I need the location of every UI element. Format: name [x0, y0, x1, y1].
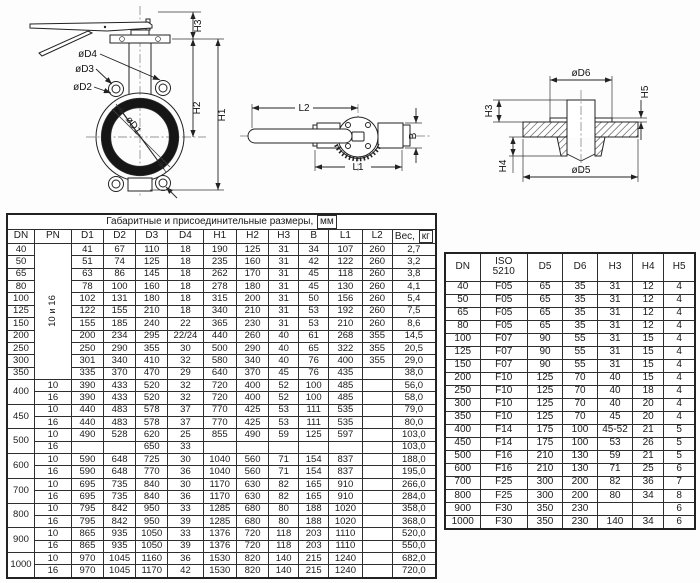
table-cell: 12	[633, 307, 664, 320]
table-cell: 70	[563, 372, 598, 385]
table-cell: 31	[598, 294, 633, 307]
table-cell: 100	[104, 281, 136, 293]
table-cell: 433	[104, 379, 136, 391]
column-header: L2	[362, 229, 392, 244]
table-cell: 79,0	[392, 404, 436, 416]
table-cell: 648	[104, 466, 136, 478]
table-cell: 36	[168, 491, 203, 503]
table-cell: 6	[664, 463, 695, 476]
table-cell: 16	[34, 565, 71, 578]
table-cell	[362, 491, 392, 503]
table-cell: 4	[664, 294, 695, 307]
table-cell: 55	[563, 359, 598, 372]
table-cell: 125	[528, 385, 563, 398]
table-cell: 4	[664, 411, 695, 424]
table-cell: 268	[329, 330, 362, 342]
table-row: 40F05653531124	[445, 281, 695, 294]
column-header: DN	[445, 253, 480, 281]
table-cell: 840	[136, 491, 168, 503]
column-header: L1	[329, 229, 362, 244]
table-cell: 156	[329, 293, 362, 305]
main-table-title: Габаритные и присоединительные размеры, …	[7, 214, 436, 229]
dim-label-l1: L1	[352, 162, 364, 173]
table-cell: 200	[236, 293, 268, 305]
table-cell: 29	[168, 367, 203, 379]
table-cell: 50	[299, 293, 329, 305]
dim-label-h3: H3	[484, 104, 495, 117]
table-cell: 560	[236, 454, 268, 466]
table-cell: 18	[168, 293, 203, 305]
column-header: D6	[563, 253, 598, 281]
column-header: D4	[168, 229, 203, 244]
iso-5210-table: DNISO 5210D5D6H3H4H5 40F0565353112450F05…	[444, 252, 696, 530]
table-cell: 154	[299, 454, 329, 466]
table-cell: 59	[269, 429, 299, 441]
top-view-drawing: L2 L1 B	[232, 98, 447, 178]
table-cell: 500	[445, 450, 480, 463]
table-cell: 935	[104, 528, 136, 540]
table-cell: 20,5	[392, 342, 436, 354]
table-cell: 1045	[104, 565, 136, 578]
table-cell: 840	[136, 478, 168, 490]
table-cell: 535	[329, 417, 362, 429]
table-cell: 355	[362, 355, 392, 367]
table-cell: 1240	[329, 565, 362, 578]
table-cell: 1000	[7, 552, 34, 578]
table-cell	[71, 441, 103, 453]
table-cell: 16	[34, 540, 71, 552]
dim-label-d3: øD3	[75, 64, 94, 75]
table-cell	[598, 502, 633, 515]
table-cell: 34	[633, 489, 664, 502]
table-cell: 40	[598, 372, 633, 385]
table-cell: 130	[329, 281, 362, 293]
table-cell: 80	[598, 489, 633, 502]
table-cell	[362, 515, 392, 527]
table-row: 100F07905531154	[445, 333, 695, 346]
table-cell: 720	[203, 392, 236, 404]
table-cell	[203, 441, 236, 453]
table-cell: 295	[136, 330, 168, 342]
table-cell: 90	[528, 333, 563, 346]
table-cell: 107	[329, 244, 362, 256]
table-cell: 301	[71, 355, 103, 367]
table-cell: 262	[203, 268, 236, 280]
table-cell: 180	[136, 293, 168, 305]
table-cell: 42	[299, 256, 329, 268]
table-cell: 16	[34, 515, 71, 527]
table-cell: 695	[71, 491, 103, 503]
table-cell: 103,0	[392, 429, 436, 441]
table-cell: 35	[563, 320, 598, 333]
table-cell: 118	[269, 528, 299, 540]
table-cell: 118	[269, 540, 299, 552]
table-cell: 200	[445, 372, 480, 385]
table-cell: 67	[104, 244, 136, 256]
table-cell: 855	[203, 429, 236, 441]
table-cell: 1530	[203, 565, 236, 578]
dim-label-h5: H5	[640, 85, 651, 98]
table-cell: 370	[236, 367, 268, 379]
table-cell: F30	[480, 502, 528, 515]
table-cell: 340	[203, 305, 236, 317]
table-cell: 425	[236, 404, 268, 416]
table-cell: 53	[299, 305, 329, 317]
table-cell: 10	[34, 379, 71, 391]
table-cell: F25	[480, 476, 528, 489]
table-cell: 45	[598, 411, 633, 424]
table-cell: 125	[528, 411, 563, 424]
table-cell	[362, 528, 392, 540]
table-cell: 50	[445, 294, 480, 307]
table-cell: 200	[563, 489, 598, 502]
table-cell: 18	[168, 305, 203, 317]
table-cell: 31	[269, 244, 299, 256]
table-cell: 600	[7, 454, 34, 479]
table-cell: 370	[104, 367, 136, 379]
table-cell: 210	[329, 318, 362, 330]
table-cell: 900	[445, 502, 480, 515]
table-cell: 82	[598, 476, 633, 489]
table-cell: 20	[633, 398, 664, 411]
dim-label-h4: H4	[498, 159, 509, 172]
table-cell	[362, 454, 392, 466]
table-cell: 65	[528, 294, 563, 307]
table-cell: 15	[633, 346, 664, 359]
weight-unit: кг	[419, 230, 433, 244]
column-header-weight: Вес, кг	[392, 229, 436, 244]
table-cell: 200	[563, 476, 598, 489]
table-row: 16390433520327204005210048558,0	[7, 392, 436, 404]
table-cell: F07	[480, 333, 528, 346]
table-cell: 300	[528, 489, 563, 502]
table-cell	[362, 478, 392, 490]
table-cell: 37	[168, 404, 203, 416]
table-cell: 110	[136, 244, 168, 256]
table-row: 20020023429522/24440260406126835514,5	[7, 330, 436, 342]
table-row: 45010440483578377704255311153579,0	[7, 404, 436, 416]
table-cell: 435	[329, 367, 362, 379]
table-cell: 700	[445, 476, 480, 489]
table-cell: 842	[104, 515, 136, 527]
table-cell: 368,0	[392, 515, 436, 527]
table-cell: F30	[480, 515, 528, 529]
dim-label-d2: øD2	[73, 82, 92, 93]
table-cell: 1000	[445, 515, 480, 529]
table-cell: 14,5	[392, 330, 436, 342]
table-cell: 6	[664, 502, 695, 515]
table-cell: 300	[7, 355, 34, 367]
table-cell: 3,8	[392, 268, 436, 280]
table-cell: 7,5	[392, 305, 436, 317]
column-header: ISO 5210	[480, 253, 528, 281]
table-cell: 490	[236, 429, 268, 441]
dim-label-h2: H2	[192, 101, 203, 114]
table-cell: 390	[71, 392, 103, 404]
table-cell: 33	[168, 528, 203, 540]
column-header: H5	[664, 253, 695, 281]
table-cell: 80	[269, 503, 299, 515]
table-cell: 70	[563, 411, 598, 424]
column-header: B	[299, 229, 329, 244]
column-header: H3	[269, 229, 299, 244]
table-cell: 29,0	[392, 355, 436, 367]
table-cell: 175	[528, 424, 563, 437]
table-cell: 433	[104, 392, 136, 404]
table-cell: 61	[299, 330, 329, 342]
table-row: 1686593510503913767201182031110550,0	[7, 540, 436, 552]
table-cell: 235	[203, 256, 236, 268]
table-cell: 210	[528, 450, 563, 463]
table-cell: 800	[7, 503, 34, 528]
table-cell: 680	[236, 503, 268, 515]
table-cell: 1376	[203, 528, 236, 540]
table-cell: 355	[136, 342, 168, 354]
table-cell	[633, 502, 664, 515]
table-cell: 63	[71, 268, 103, 280]
table-cell	[362, 540, 392, 552]
table-cell: 240	[136, 318, 168, 330]
table-cell: 5	[664, 450, 695, 463]
table-cell: 1110	[329, 540, 362, 552]
table-cell: F07	[480, 346, 528, 359]
table-cell: 125	[528, 372, 563, 385]
table-cell: 1020	[329, 503, 362, 515]
table-cell: 76	[299, 367, 329, 379]
table-cell: 100	[563, 437, 598, 450]
table-cell: 210	[528, 463, 563, 476]
table-cell: 80	[269, 515, 299, 527]
table-cell: 365	[203, 318, 236, 330]
table-row: 350F101257045204	[445, 411, 695, 424]
table-cell: 45	[299, 268, 329, 280]
table-cell: 31	[269, 268, 299, 280]
table-cell: 770	[203, 417, 236, 429]
table-cell: 170	[236, 268, 268, 280]
table-cell: 10	[34, 503, 71, 515]
column-header: H4	[633, 253, 664, 281]
handle-bar	[248, 129, 352, 143]
table-cell: 34	[633, 515, 664, 529]
table-cell: 4	[664, 398, 695, 411]
table-cell: 215	[299, 552, 329, 564]
table-cell	[362, 392, 392, 404]
table-cell: 4	[664, 307, 695, 320]
table-cell: 55	[563, 333, 598, 346]
table-cell: 190	[203, 244, 236, 256]
table-cell: 1285	[203, 503, 236, 515]
table-cell: 16	[34, 392, 71, 404]
table-row: 6001059064872530104056071154837188,0	[7, 454, 436, 466]
table-cell: 597	[329, 429, 362, 441]
table-cell: 535	[329, 404, 362, 416]
table-cell: 5	[664, 424, 695, 437]
table-cell: 578	[136, 417, 168, 429]
table-row: 1251221552101834021031531922607,5	[7, 305, 436, 317]
table-cell: 145	[136, 268, 168, 280]
table-cell: 111	[299, 404, 329, 416]
table-row: 7001069573584030117063082165910266,0	[7, 478, 436, 490]
table-cell: 210	[236, 305, 268, 317]
table-cell: 795	[71, 515, 103, 527]
table-cell: 40	[7, 244, 34, 256]
table-cell: 450	[7, 404, 34, 429]
table-cell: 90	[528, 359, 563, 372]
table-cell: 4,1	[392, 281, 436, 293]
table-cell: 440	[71, 417, 103, 429]
table-cell: 37	[168, 417, 203, 429]
table-cell: 31	[598, 307, 633, 320]
table-cell: 4	[664, 281, 695, 294]
table-cell: 192	[329, 305, 362, 317]
table-cell: 290	[236, 342, 268, 354]
table-cell: 720	[236, 540, 268, 552]
table-cell: 25	[168, 429, 203, 441]
table-cell: 250	[445, 385, 480, 398]
table-cell	[362, 552, 392, 564]
table-cell: 290	[104, 342, 136, 354]
table-cell: 520,0	[392, 528, 436, 540]
table-cell: 215	[299, 565, 329, 578]
table-cell	[104, 441, 136, 453]
table-row: 600F1621013071256	[445, 463, 695, 476]
table-row: 16970104511704215308201402151240720,0	[7, 565, 436, 578]
column-header: H2	[236, 229, 268, 244]
table-cell: 355	[362, 330, 392, 342]
dim-label-d5: øD5	[572, 165, 591, 176]
table-cell: 5,4	[392, 293, 436, 305]
column-header: D2	[104, 229, 136, 244]
table-cell: 260	[362, 244, 392, 256]
table-cell: F05	[480, 281, 528, 294]
table-cell: 720	[236, 528, 268, 540]
table-cell: 10	[34, 528, 71, 540]
table-cell: 53	[598, 437, 633, 450]
table-cell: 440	[71, 404, 103, 416]
table-cell: 70	[563, 385, 598, 398]
table-cell: 490	[71, 429, 103, 441]
table-row: 65F05653531124	[445, 307, 695, 320]
table-cell: 10	[34, 404, 71, 416]
table-cell: 500	[203, 342, 236, 354]
table-cell: 195,0	[392, 466, 436, 478]
table-cell: 16	[34, 441, 71, 453]
table-cell: 45-52	[598, 424, 633, 437]
table-cell: 122	[71, 305, 103, 317]
column-header: PN	[34, 229, 71, 244]
table-cell: F05	[480, 320, 528, 333]
table-cell: 4	[664, 359, 695, 372]
table-cell: 188,0	[392, 454, 436, 466]
table-cell: 65	[528, 320, 563, 333]
table-cell: 32	[168, 392, 203, 404]
table-cell: 4	[664, 346, 695, 359]
table-cell: 59	[598, 450, 633, 463]
dim-label-l2: L2	[298, 103, 310, 114]
table-cell: 483	[104, 417, 136, 429]
table-cell: 230	[236, 318, 268, 330]
table-cell: 140	[269, 565, 299, 578]
table-cell: 31	[269, 305, 299, 317]
table-row: 9001086593510503313767201182031110520,0	[7, 528, 436, 540]
table-cell: 51	[71, 256, 103, 268]
table-cell: 35	[563, 294, 598, 307]
table-cell: 284,0	[392, 491, 436, 503]
table-cell: 300	[445, 398, 480, 411]
table-cell: 160	[236, 256, 268, 268]
table-cell: 15	[633, 359, 664, 372]
table-cell: 300	[528, 476, 563, 489]
table-cell: 18	[168, 281, 203, 293]
table-cell: 53	[269, 404, 299, 416]
table-row: 400F1417510045-52215	[445, 424, 695, 437]
table-row: 1665033103,0	[7, 441, 436, 453]
table-cell: 31	[269, 281, 299, 293]
table-cell: F10	[480, 372, 528, 385]
table-row: 1001021311801831520031501562605,4	[7, 293, 436, 305]
table-row: 4010 и 1641671101819012531341072602,7	[7, 244, 436, 256]
table-cell: 560	[236, 466, 268, 478]
table-cell: 340	[104, 355, 136, 367]
dim-label-h1: H1	[217, 108, 228, 121]
table-cell: 125	[7, 305, 34, 317]
table-cell: 450	[445, 437, 480, 450]
table-cell: 580	[203, 355, 236, 367]
table-cell: 5	[664, 437, 695, 450]
table-cell: 100	[563, 424, 598, 437]
table-cell: 40	[269, 330, 299, 342]
table-cell	[362, 417, 392, 429]
table-cell: 260	[362, 281, 392, 293]
table-cell: 358,0	[392, 503, 436, 515]
table-cell: 650	[136, 441, 168, 453]
table-cell: 125	[299, 429, 329, 441]
table-cell: 1020	[329, 515, 362, 527]
table-row: 80010795842950331285680801881020358,0	[7, 503, 436, 515]
table-cell: 53	[299, 318, 329, 330]
table-cell: 350	[445, 411, 480, 424]
flange-plate	[523, 90, 638, 172]
table-cell: 125	[236, 244, 268, 256]
table-cell: 52	[269, 379, 299, 391]
table-cell: 70	[563, 398, 598, 411]
table-cell: 35	[563, 307, 598, 320]
table-cell: 4	[664, 372, 695, 385]
table-cell: 76	[299, 355, 329, 367]
table-cell: 970	[71, 565, 103, 578]
table-cell: 25	[633, 463, 664, 476]
table-cell: 26	[633, 437, 664, 450]
table-cell: 100	[299, 379, 329, 391]
table-cell	[269, 441, 299, 453]
table-row: 1669573584036117063082165910284,0	[7, 491, 436, 503]
column-header: D5	[528, 253, 563, 281]
table-cell: 200	[7, 330, 34, 342]
table-row: 500F1621013059215	[445, 450, 695, 463]
table-cell: 842	[104, 503, 136, 515]
dim-label-d4: øD4	[78, 49, 97, 60]
table-cell: 52	[269, 392, 299, 404]
table-cell: 100	[445, 333, 480, 346]
table-cell: 38,0	[392, 367, 436, 379]
main-dimensions-table-wrap: Габаритные и присоединительные размеры, …	[6, 213, 437, 579]
table-cell: 1110	[329, 528, 362, 540]
table-cell: F10	[480, 385, 528, 398]
table-cell: 36	[168, 466, 203, 478]
table-cell	[362, 429, 392, 441]
table-cell: 78	[71, 281, 103, 293]
table-cell: 140	[598, 515, 633, 529]
